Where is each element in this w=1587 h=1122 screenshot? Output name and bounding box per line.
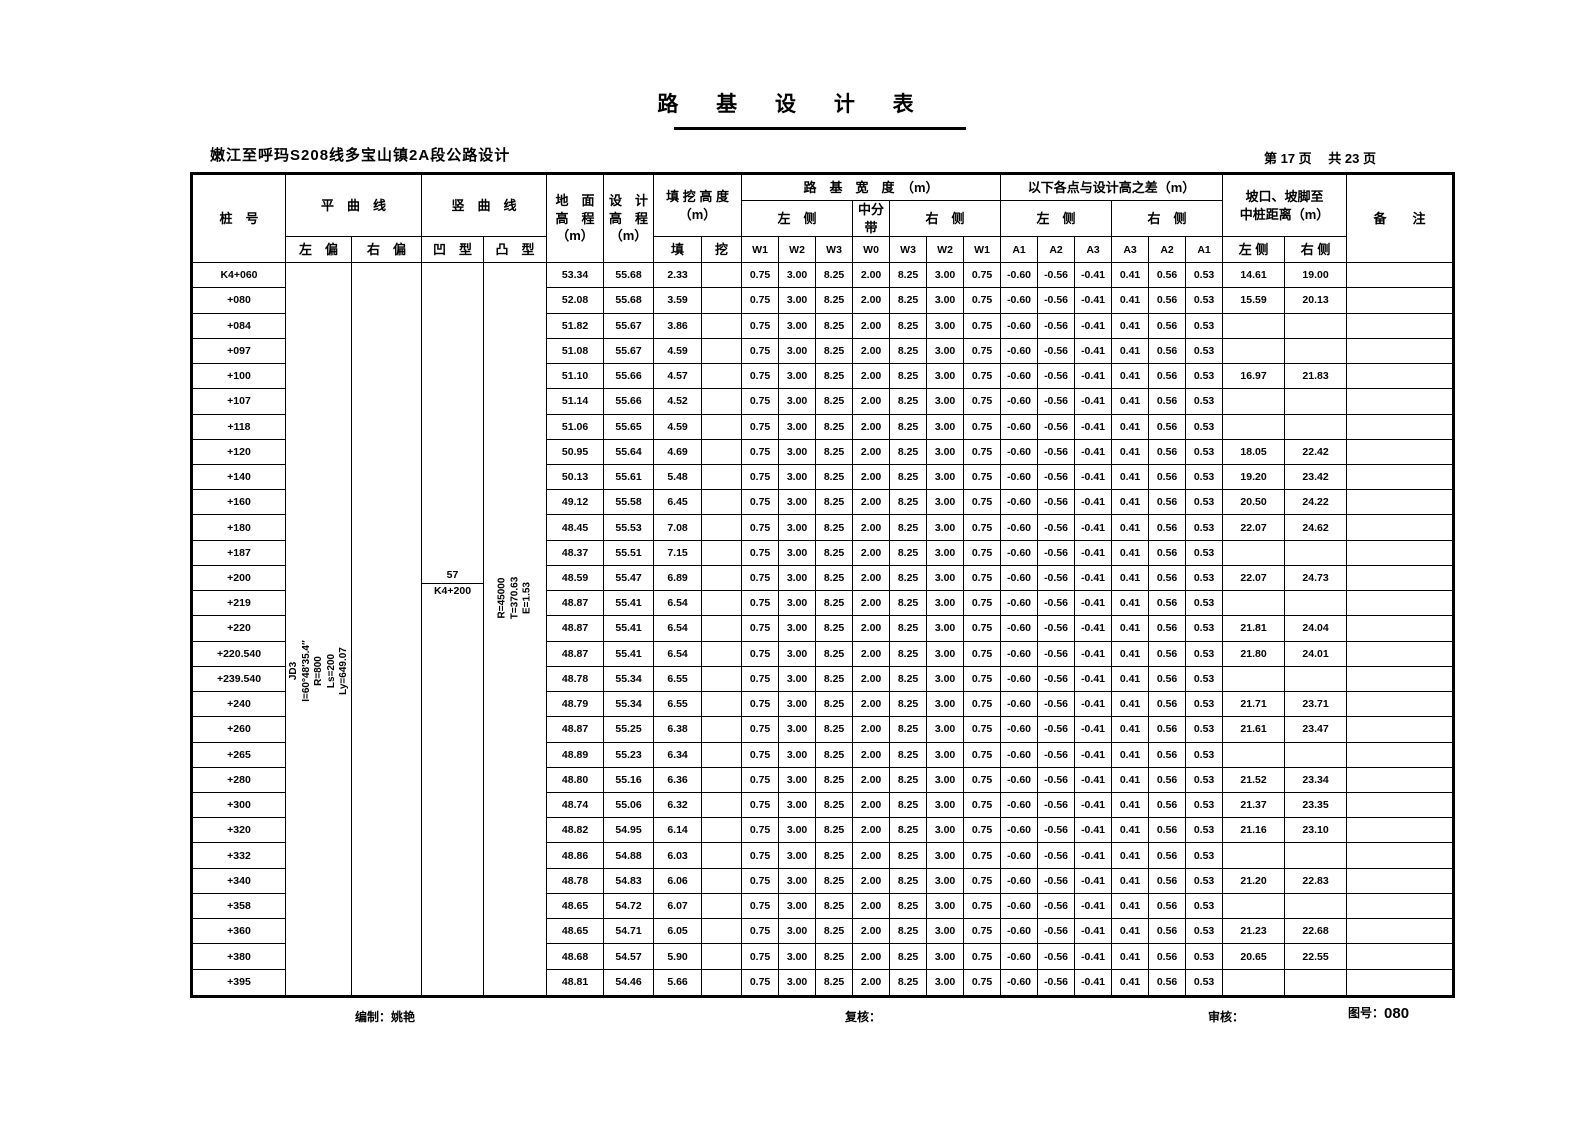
elevation-diff-cell: 0.53: [1186, 692, 1223, 717]
roadbed-width-cell: 8.25: [816, 767, 853, 792]
elevation-diff-cell: 0.56: [1149, 818, 1186, 843]
roadbed-width-cell: 8.25: [816, 969, 853, 996]
elevation-diff-cell: -0.41: [1075, 843, 1112, 868]
cutfill-unit: （m）: [654, 206, 741, 224]
elevation-diff-cell: -0.56: [1038, 338, 1075, 363]
roadbed-width-cell: 2.00: [853, 893, 890, 918]
annotation-numerator: 57: [422, 569, 483, 584]
elevation-diff-cell: -0.60: [1001, 490, 1038, 515]
elevation-diff-cell: -0.41: [1075, 767, 1112, 792]
elevation-diff-cell: 0.56: [1149, 944, 1186, 969]
slope-distance-right-cell: 22.68: [1285, 919, 1347, 944]
elevation-diff-cell: -0.41: [1075, 793, 1112, 818]
elevation-diff-cell: 0.41: [1112, 616, 1149, 641]
roadbed-width-cell: 0.75: [742, 666, 779, 691]
elevation-diff-cell: -0.56: [1038, 364, 1075, 389]
remark-cell: [1347, 414, 1454, 439]
roadbed-width-cell: 0.75: [964, 742, 1001, 767]
elevation-diff-cell: -0.56: [1038, 565, 1075, 590]
subheader-a1-left: A1: [1001, 237, 1038, 263]
design-elevation-cell: 55.41: [604, 591, 654, 616]
elevation-diff-cell: 0.53: [1186, 288, 1223, 313]
cut-height-cell: [702, 288, 742, 313]
roadbed-width-cell: 3.00: [779, 540, 816, 565]
slope-distance-left-cell: 21.61: [1223, 717, 1285, 742]
elevation-diff-cell: -0.56: [1038, 767, 1075, 792]
design-elevation-cell: 55.51: [604, 540, 654, 565]
slope-distance-right-cell: 24.04: [1285, 616, 1347, 641]
roadbed-width-cell: 0.75: [964, 313, 1001, 338]
roadbed-width-cell: 8.25: [890, 515, 927, 540]
roadbed-width-cell: 3.00: [779, 263, 816, 288]
roadbed-width-cell: 3.00: [927, 793, 964, 818]
ground-elevation-cell: 48.79: [547, 692, 604, 717]
slope-distance-left-cell: [1223, 742, 1285, 767]
roadbed-width-cell: 8.25: [890, 793, 927, 818]
elevation-diff-cell: -0.41: [1075, 490, 1112, 515]
elevation-diff-cell: -0.56: [1038, 868, 1075, 893]
slope-distance-right-cell: [1285, 969, 1347, 996]
elevation-diff-cell: -0.60: [1001, 414, 1038, 439]
stake-number-cell: +280: [192, 767, 286, 792]
roadbed-width-cell: 3.00: [779, 616, 816, 641]
roadbed-width-cell: 3.00: [927, 767, 964, 792]
annotation-line: T=370.63: [509, 577, 522, 620]
ground-elevation-cell: 48.87: [547, 641, 604, 666]
roadbed-width-cell: 8.25: [890, 818, 927, 843]
design-elevation-cell: 55.66: [604, 389, 654, 414]
roadbed-width-cell: 0.75: [742, 389, 779, 414]
remark-cell: [1347, 919, 1454, 944]
elevation-diff-cell: 0.56: [1149, 263, 1186, 288]
elevation-diff-cell: 0.56: [1149, 666, 1186, 691]
design-elevation-cell: 55.53: [604, 515, 654, 540]
fill-height-cell: 6.38: [654, 717, 702, 742]
subheader-cut: 挖: [702, 237, 742, 263]
roadbed-width-cell: 0.75: [742, 414, 779, 439]
roadbed-width-cell: 3.00: [927, 868, 964, 893]
elevation-diff-cell: 0.56: [1149, 565, 1186, 590]
roadbed-width-cell: 0.75: [964, 616, 1001, 641]
roadbed-width-cell: 8.25: [816, 793, 853, 818]
design-elevation-cell: 55.23: [604, 742, 654, 767]
roadbed-width-cell: 8.25: [816, 540, 853, 565]
design-elevation-cell: 55.67: [604, 313, 654, 338]
elevation-diff-cell: -0.60: [1001, 666, 1038, 691]
stake-number-cell: +240: [192, 692, 286, 717]
slope-distance-left-cell: [1223, 666, 1285, 691]
fill-height-cell: 6.06: [654, 868, 702, 893]
roadbed-width-cell: 0.75: [964, 717, 1001, 742]
fill-height-cell: 6.45: [654, 490, 702, 515]
roadbed-width-cell: 8.25: [816, 616, 853, 641]
elevation-diff-cell: -0.56: [1038, 263, 1075, 288]
roadbed-width-cell: 0.75: [742, 868, 779, 893]
stake-number-cell: +360: [192, 919, 286, 944]
design-elevation-cell: 54.71: [604, 919, 654, 944]
design-elevation-cell: 55.06: [604, 793, 654, 818]
roadbed-width-cell: 2.00: [853, 767, 890, 792]
roadbed-width-cell: 2.00: [853, 666, 890, 691]
cut-height-cell: [702, 338, 742, 363]
elevation-diff-cell: -0.60: [1001, 818, 1038, 843]
subheader-w3-left: W3: [816, 237, 853, 263]
roadbed-width-cell: 0.75: [964, 288, 1001, 313]
elevation-diff-cell: -0.41: [1075, 893, 1112, 918]
ground-elevation-cell: 48.78: [547, 868, 604, 893]
roadbed-width-cell: 3.00: [779, 742, 816, 767]
roadbed-width-cell: 8.25: [890, 338, 927, 363]
elevation-diff-cell: 0.56: [1149, 717, 1186, 742]
remark-cell: [1347, 439, 1454, 464]
remark-cell: [1347, 868, 1454, 893]
stake-number-cell: +097: [192, 338, 286, 363]
elevation-diff-cell: -0.60: [1001, 515, 1038, 540]
ground-elevation-cell: 48.86: [547, 843, 604, 868]
roadbed-width-cell: 3.00: [779, 793, 816, 818]
elevation-diff-cell: -0.60: [1001, 288, 1038, 313]
roadbed-width-cell: 2.00: [853, 969, 890, 996]
elevation-diff-cell: -0.41: [1075, 641, 1112, 666]
remark-cell: [1347, 893, 1454, 918]
stake-number-cell: +220.540: [192, 641, 286, 666]
elevation-diff-cell: -0.60: [1001, 364, 1038, 389]
roadbed-width-cell: 3.00: [927, 338, 964, 363]
elevation-diff-cell: -0.60: [1001, 893, 1038, 918]
roadbed-width-cell: 8.25: [816, 263, 853, 288]
subheader-w1-right: W1: [964, 237, 1001, 263]
roadbed-width-cell: 0.75: [964, 364, 1001, 389]
elevation-diff-cell: -0.60: [1001, 641, 1038, 666]
roadbed-width-cell: 8.25: [890, 919, 927, 944]
roadbed-width-cell: 3.00: [779, 868, 816, 893]
subheader-width-median: 中分带: [853, 201, 890, 237]
fill-height-cell: 3.59: [654, 288, 702, 313]
roadbed-width-cell: 8.25: [890, 742, 927, 767]
roadbed-width-cell: 0.75: [964, 515, 1001, 540]
roadbed-width-cell: 8.25: [890, 540, 927, 565]
elevation-diff-cell: 0.56: [1149, 919, 1186, 944]
col-header-vertical-curve: 竖 曲 线: [422, 174, 547, 237]
elevation-diff-cell: -0.41: [1075, 616, 1112, 641]
roadbed-width-cell: 0.75: [964, 666, 1001, 691]
elevation-diff-cell: 0.56: [1149, 868, 1186, 893]
elevation-diff-cell: -0.41: [1075, 288, 1112, 313]
elevation-diff-cell: 0.53: [1186, 364, 1223, 389]
stake-number-cell: +320: [192, 818, 286, 843]
elevation-diff-cell: -0.41: [1075, 742, 1112, 767]
cut-height-cell: [702, 414, 742, 439]
roadbed-width-cell: 2.00: [853, 818, 890, 843]
roadbed-width-cell: 3.00: [927, 692, 964, 717]
elevation-diff-cell: -0.56: [1038, 490, 1075, 515]
roadbed-width-cell: 0.75: [742, 263, 779, 288]
roadbed-width-cell: 3.00: [927, 288, 964, 313]
ground-elevation-cell: 50.95: [547, 439, 604, 464]
elevation-diff-cell: -0.56: [1038, 893, 1075, 918]
fill-height-cell: 6.36: [654, 767, 702, 792]
ground-elevation-cell: 51.82: [547, 313, 604, 338]
slope-distance-left-cell: 21.16: [1223, 818, 1285, 843]
elevation-diff-cell: 0.56: [1149, 338, 1186, 363]
roadbed-width-cell: 0.75: [742, 893, 779, 918]
elevation-diff-cell: -0.56: [1038, 742, 1075, 767]
elevation-diff-cell: 0.53: [1186, 313, 1223, 338]
elevation-diff-cell: -0.56: [1038, 464, 1075, 489]
stake-number-cell: +358: [192, 893, 286, 918]
fill-height-cell: 6.03: [654, 843, 702, 868]
stake-number-cell: +332: [192, 843, 286, 868]
remark-cell: [1347, 490, 1454, 515]
elevation-diff-cell: 0.53: [1186, 616, 1223, 641]
subheader-w1-left: W1: [742, 237, 779, 263]
elevation-diff-cell: -0.56: [1038, 641, 1075, 666]
slope-distance-left-cell: [1223, 338, 1285, 363]
roadbed-width-cell: 2.00: [853, 692, 890, 717]
roadbed-width-cell: 0.75: [964, 692, 1001, 717]
elevation-diff-cell: 0.56: [1149, 464, 1186, 489]
check-label: 复核：: [845, 1010, 881, 1024]
roadbed-width-cell: 8.25: [816, 364, 853, 389]
page-title: 路 基 设 计 表: [0, 88, 1587, 118]
elevation-diff-cell: -0.41: [1075, 919, 1112, 944]
elevation-diff-cell: 0.53: [1186, 868, 1223, 893]
roadbed-width-cell: 8.25: [816, 591, 853, 616]
stake-number-cell: +160: [192, 490, 286, 515]
cut-height-cell: [702, 793, 742, 818]
design-elevation-cell: 55.65: [604, 414, 654, 439]
roadbed-width-cell: 0.75: [964, 540, 1001, 565]
elevation-diff-cell: 0.41: [1112, 666, 1149, 691]
title-underline: [674, 127, 966, 130]
slope-distance-left-cell: 21.23: [1223, 919, 1285, 944]
stake-number-cell: +080: [192, 288, 286, 313]
cut-height-cell: [702, 843, 742, 868]
subheader-a3-right: A3: [1112, 237, 1149, 263]
stake-number-cell: +100: [192, 364, 286, 389]
cut-height-cell: [702, 944, 742, 969]
col-header-horizontal-curve: 平 曲 线: [286, 174, 422, 237]
slope-distance-right-cell: 24.01: [1285, 641, 1347, 666]
prepared-label: 编制：: [355, 1010, 391, 1024]
roadbed-width-cell: 2.00: [853, 364, 890, 389]
elevation-diff-cell: 0.41: [1112, 793, 1149, 818]
roadbed-width-cell: 3.00: [927, 414, 964, 439]
elevation-diff-cell: 0.56: [1149, 843, 1186, 868]
roadbed-width-cell: 3.00: [927, 515, 964, 540]
remark-cell: [1347, 742, 1454, 767]
roadbed-width-cell: 0.75: [742, 616, 779, 641]
col-header-remark: 备 注: [1347, 174, 1454, 263]
roadbed-width-cell: 2.00: [853, 843, 890, 868]
elevation-diff-cell: -0.56: [1038, 969, 1075, 996]
slope-distance-right-cell: 23.42: [1285, 464, 1347, 489]
elevation-diff-cell: 0.56: [1149, 313, 1186, 338]
remark-cell: [1347, 565, 1454, 590]
cut-height-cell: [702, 263, 742, 288]
elevation-diff-cell: -0.41: [1075, 464, 1112, 489]
remark-cell: [1347, 515, 1454, 540]
elevation-diff-cell: -0.60: [1001, 919, 1038, 944]
roadbed-width-cell: 8.25: [890, 565, 927, 590]
roadbed-width-cell: 3.00: [927, 565, 964, 590]
cut-height-cell: [702, 742, 742, 767]
slope-distance-right-cell: 20.13: [1285, 288, 1347, 313]
slope-distance-right-cell: [1285, 893, 1347, 918]
cut-height-cell: [702, 389, 742, 414]
roadbed-width-cell: 0.75: [964, 263, 1001, 288]
elevation-diff-cell: 0.41: [1112, 641, 1149, 666]
slope-distance-right-cell: [1285, 540, 1347, 565]
remark-cell: [1347, 313, 1454, 338]
slope-distance-left-cell: [1223, 893, 1285, 918]
ground-elevation-cell: 51.10: [547, 364, 604, 389]
roadbed-width-cell: 0.75: [964, 969, 1001, 996]
slope-distance-left-cell: 21.71: [1223, 692, 1285, 717]
roadbed-width-cell: 0.75: [742, 591, 779, 616]
design-elevation-cell: 55.68: [604, 288, 654, 313]
stake-number-cell: K4+060: [192, 263, 286, 288]
fill-height-cell: 6.34: [654, 742, 702, 767]
cut-height-cell: [702, 692, 742, 717]
annotation-line: JD3: [287, 640, 300, 702]
stake-number-cell: +187: [192, 540, 286, 565]
elevation-diff-cell: 0.41: [1112, 389, 1149, 414]
roadbed-width-cell: 0.75: [964, 338, 1001, 363]
stake-number-cell: +239.540: [192, 666, 286, 691]
annotation-line: Ly=649.07: [337, 640, 350, 702]
roadbed-width-cell: 3.00: [927, 591, 964, 616]
elevation-diff-cell: -0.60: [1001, 540, 1038, 565]
roadbed-width-cell: 3.00: [927, 717, 964, 742]
elevation-diff-cell: -0.41: [1075, 338, 1112, 363]
elevation-diff-cell: 0.41: [1112, 868, 1149, 893]
roadbed-width-cell: 0.75: [742, 490, 779, 515]
roadbed-width-cell: 3.00: [927, 313, 964, 338]
elevation-diff-cell: -0.41: [1075, 439, 1112, 464]
slope-distance-left-cell: 19.20: [1223, 464, 1285, 489]
vcurve-concave-annotation: 57K4+200: [422, 569, 483, 598]
roadbed-width-cell: 3.00: [927, 540, 964, 565]
stake-number-cell: +395: [192, 969, 286, 996]
elevation-diff-cell: -0.41: [1075, 666, 1112, 691]
elevation-diff-cell: 0.41: [1112, 692, 1149, 717]
slope-distance-left-cell: 20.65: [1223, 944, 1285, 969]
elevation-diff-cell: -0.60: [1001, 944, 1038, 969]
elevation-diff-cell: -0.60: [1001, 843, 1038, 868]
elevation-diff-cell: -0.56: [1038, 843, 1075, 868]
design-elevation-cell: 55.34: [604, 666, 654, 691]
slope-distance-right-cell: [1285, 843, 1347, 868]
roadbed-width-cell: 0.75: [742, 313, 779, 338]
roadbed-width-cell: 3.00: [927, 944, 964, 969]
roadbed-width-cell: 3.00: [779, 818, 816, 843]
elevation-diff-cell: 0.53: [1186, 464, 1223, 489]
col-header-design-elevation: 设 计 高 程 （m）: [604, 174, 654, 263]
design-elevation-cell: 55.34: [604, 692, 654, 717]
design-elevation-cell: 55.25: [604, 717, 654, 742]
design-elevation-cell: 54.72: [604, 893, 654, 918]
design-elevation-line2: 高 程: [604, 210, 653, 228]
design-elevation-cell: 55.66: [604, 364, 654, 389]
elevation-diff-cell: -0.41: [1075, 692, 1112, 717]
roadbed-design-table: 桩 号 平 曲 线 竖 曲 线 地 面 高 程 （m） 设 计 高 程 （m） …: [190, 172, 1455, 998]
fill-height-cell: 4.69: [654, 439, 702, 464]
slope-distance-left-cell: 14.61: [1223, 263, 1285, 288]
slope-distance-right-cell: 22.83: [1285, 868, 1347, 893]
stake-number-cell: +107: [192, 389, 286, 414]
elevation-diff-cell: 0.41: [1112, 515, 1149, 540]
roadbed-width-cell: 2.00: [853, 439, 890, 464]
roadbed-width-cell: 3.00: [779, 591, 816, 616]
stake-number-cell: +118: [192, 414, 286, 439]
elevation-diff-cell: 0.41: [1112, 263, 1149, 288]
elevation-diff-cell: 0.56: [1149, 414, 1186, 439]
roadbed-width-cell: 3.00: [927, 818, 964, 843]
roadbed-width-cell: 3.00: [927, 464, 964, 489]
design-elevation-cell: 54.46: [604, 969, 654, 996]
roadbed-width-cell: 2.00: [853, 591, 890, 616]
elevation-diff-cell: -0.56: [1038, 692, 1075, 717]
subheader-width-right: 右 侧: [890, 201, 1001, 237]
slope-distance-left-cell: [1223, 540, 1285, 565]
ground-elevation-cell: 53.34: [547, 263, 604, 288]
roadbed-width-cell: 2.00: [853, 742, 890, 767]
elevation-diff-cell: 0.53: [1186, 641, 1223, 666]
roadbed-width-cell: 3.00: [927, 439, 964, 464]
elevation-diff-cell: -0.60: [1001, 767, 1038, 792]
elevation-diff-cell: 0.53: [1186, 793, 1223, 818]
roadbed-width-cell: 8.25: [816, 868, 853, 893]
roadbed-width-cell: 8.25: [890, 389, 927, 414]
roadbed-width-cell: 3.00: [779, 313, 816, 338]
elevation-diff-cell: 0.41: [1112, 414, 1149, 439]
elevation-diff-cell: -0.56: [1038, 540, 1075, 565]
cut-height-cell: [702, 591, 742, 616]
roadbed-width-cell: 2.00: [853, 490, 890, 515]
roadbed-width-cell: 3.00: [779, 944, 816, 969]
elevation-diff-cell: -0.60: [1001, 793, 1038, 818]
roadbed-width-cell: 8.25: [816, 490, 853, 515]
annotation-line: I=60°48′35.4″: [300, 640, 313, 702]
remark-cell: [1347, 591, 1454, 616]
cutfill-title: 填 挖 高 度: [654, 188, 741, 206]
roadbed-width-cell: 3.00: [779, 364, 816, 389]
elevation-diff-cell: 0.53: [1186, 919, 1223, 944]
roadbed-width-cell: 0.75: [964, 565, 1001, 590]
subheader-w2-right: W2: [927, 237, 964, 263]
elevation-diff-cell: 0.53: [1186, 767, 1223, 792]
elevation-diff-cell: 0.56: [1149, 641, 1186, 666]
roadbed-width-cell: 0.75: [742, 818, 779, 843]
stake-number-cell: +120: [192, 439, 286, 464]
elevation-diff-cell: 0.53: [1186, 742, 1223, 767]
ground-elevation-line2: 高 程: [547, 210, 603, 228]
roadbed-width-cell: 2.00: [853, 565, 890, 590]
slope-distance-right-cell: 24.62: [1285, 515, 1347, 540]
elevation-diff-cell: -0.56: [1038, 616, 1075, 641]
annotation-line: R=800: [312, 640, 325, 702]
roadbed-width-cell: 8.25: [890, 439, 927, 464]
elevation-diff-cell: -0.56: [1038, 515, 1075, 540]
slope-distance-right-cell: 23.34: [1285, 767, 1347, 792]
footer-review: 审核：: [1208, 1008, 1244, 1025]
slope-distance-left-cell: [1223, 313, 1285, 338]
subheader-vcurve-concave: 凹 型: [422, 237, 484, 263]
roadbed-width-cell: 0.75: [964, 439, 1001, 464]
remark-cell: [1347, 767, 1454, 792]
elevation-diff-cell: 0.53: [1186, 818, 1223, 843]
